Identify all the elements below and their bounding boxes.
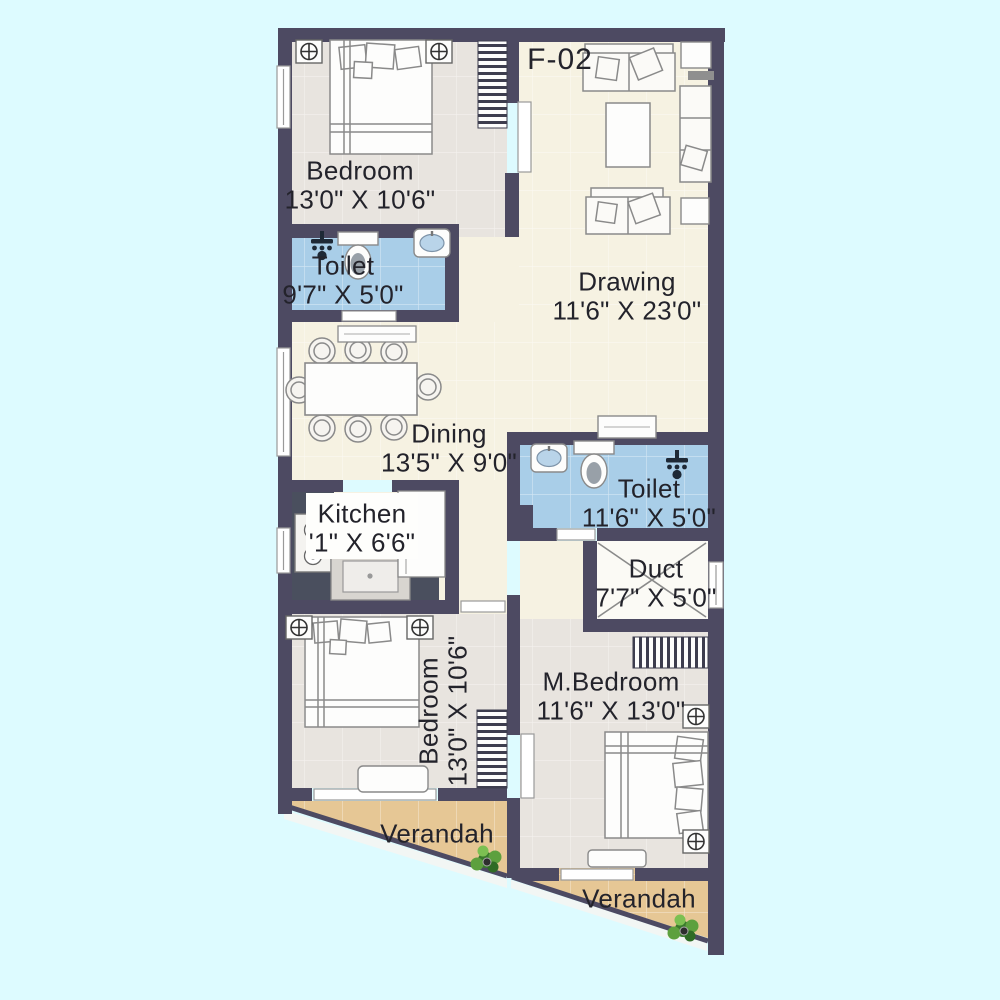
unit-label: F-02 xyxy=(527,43,593,77)
washbasin-icon xyxy=(531,444,567,472)
floor-corridor xyxy=(459,480,507,614)
side-table-icon xyxy=(681,42,711,68)
dining-table-icon xyxy=(305,363,417,415)
bed-bottom-icon xyxy=(305,617,419,727)
bench-icon xyxy=(588,850,646,867)
room-label-duct: Duct 7'7" X 5'0" xyxy=(595,555,716,614)
room-name: M.Bedroom xyxy=(537,668,686,697)
room-dim: 11'6" X 5'0" xyxy=(582,504,716,533)
room-label-drawing: Drawing 11'6" X 23'0" xyxy=(553,268,702,327)
room-dim: 11'6" X 23'0" xyxy=(553,297,702,326)
washbasin-icon xyxy=(414,229,450,257)
room-name: Bedroom xyxy=(285,157,436,186)
circle-cross-box-icon xyxy=(296,40,322,63)
room-label-verandah-left: Verandah xyxy=(380,819,494,848)
room-label-toilet-mid: Toilet 11'6" X 5'0" xyxy=(582,475,716,534)
door-leaf-icon xyxy=(518,102,531,172)
bed-master-icon xyxy=(605,732,708,838)
room-label-bedroom-bottom: Bedroom 13'0" X 10'6" xyxy=(415,636,474,787)
long-sofa-icon xyxy=(680,86,711,182)
floor-passage-top xyxy=(459,237,519,322)
room-name: Verandah xyxy=(582,884,696,913)
room-dim: 7'7" X 5'0" xyxy=(595,584,716,613)
room-name: Dining xyxy=(381,420,517,449)
sofa-set-bottom-icon xyxy=(586,188,670,234)
wardrobe-hatch-icon xyxy=(633,637,708,668)
room-name: Drawing xyxy=(553,268,702,297)
room-label-m-bedroom: M.Bedroom 11'6" X 13'0" xyxy=(537,668,686,727)
floor-passage-mid xyxy=(520,541,583,619)
room-name: Duct xyxy=(595,555,716,584)
center-table-icon xyxy=(606,103,650,167)
room-dim: 13'5" X 9'0" xyxy=(381,449,517,478)
room-dim: 13'0" X 10'6" xyxy=(285,186,436,215)
room-label-bedroom-top: Bedroom 13'0" X 10'6" xyxy=(285,157,436,216)
circle-cross-box-icon xyxy=(683,830,709,853)
floor-plan-drawing xyxy=(0,0,1000,1000)
door-sill xyxy=(461,601,505,612)
door-sill xyxy=(561,869,633,880)
room-label-verandah-right: Verandah xyxy=(582,884,696,913)
room-name: Verandah xyxy=(380,819,494,848)
room-name: Kitchen xyxy=(309,500,416,529)
room-name: Toilet xyxy=(282,252,403,281)
circle-cross-box-icon xyxy=(286,616,312,639)
room-dim: 9'7" X 5'0" xyxy=(282,281,403,310)
room-label-kitchen: Kitchen '1" X 6'6" xyxy=(309,500,416,559)
wardrobe-hatch-icon xyxy=(477,710,507,788)
room-name: Bedroom xyxy=(415,636,444,787)
circle-cross-box-icon xyxy=(683,705,709,728)
door-sill xyxy=(342,311,396,321)
room-dim: 13'0" X 10'6" xyxy=(444,636,473,787)
floor-plan: F-02 Bedroom 13'0" X 10'6" Toilet 9'7" X… xyxy=(0,0,1000,1000)
sofa-set-top-icon xyxy=(583,44,675,91)
tv-unit-icon xyxy=(688,71,714,80)
dresser-icon xyxy=(598,416,656,438)
circle-cross-box-icon xyxy=(426,40,452,63)
wardrobe-hatch-icon xyxy=(478,41,507,128)
door-leaf-icon xyxy=(521,734,534,798)
room-name: Toilet xyxy=(582,475,716,504)
sideboard-icon xyxy=(338,326,416,342)
side-table-icon xyxy=(681,198,709,224)
room-label-dining: Dining 13'5" X 9'0" xyxy=(381,420,517,479)
room-dim: 11'6" X 13'0" xyxy=(537,697,686,726)
room-label-toilet-top: Toilet 9'7" X 5'0" xyxy=(282,252,403,311)
bed-top-icon xyxy=(330,40,432,154)
room-dim: '1" X 6'6" xyxy=(309,529,416,558)
